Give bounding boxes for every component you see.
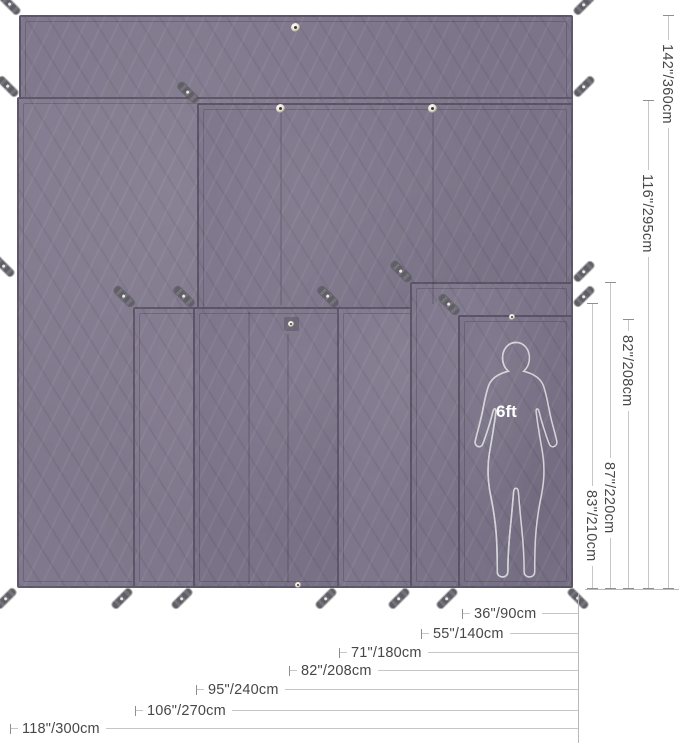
width-dim-118: 118"/300cm: [10, 720, 578, 737]
stake-loop-icon: [573, 0, 595, 15]
height-dim-142: 142"/360cm: [668, 15, 669, 589]
height-dim-116: 116"/295cm: [648, 100, 649, 589]
human-silhouette: [468, 336, 564, 586]
grommet-icon: [276, 104, 285, 113]
width-dim-label: 36"/90cm: [474, 606, 536, 622]
width-dim-label: 95"/240cm: [208, 682, 279, 698]
height-dim-label: 116"/295cm: [638, 170, 656, 257]
stake-loop-icon: [0, 0, 21, 15]
stake-loop-icon: [171, 588, 193, 610]
tarp-seam: [280, 110, 282, 305]
tarp-seam: [248, 312, 250, 584]
stake-loop-icon: [388, 588, 410, 610]
stake-loop-icon: [315, 588, 337, 610]
grommet-icon: [428, 104, 437, 113]
tarp-seam: [287, 334, 289, 583]
height-dim-82: 82"/208cm: [628, 319, 629, 589]
height-dim-87: 87"/220cm: [610, 282, 611, 589]
person-height-label: 6ft: [496, 402, 517, 422]
stake-loop-icon: [436, 588, 458, 610]
width-dim-label: 82"/208cm: [301, 663, 372, 679]
height-dim-label: 82"/208cm: [618, 331, 636, 411]
width-dim-71: 71"/180cm: [339, 644, 578, 661]
tarp-seam: [432, 112, 434, 304]
width-dim-55: 55"/140cm: [421, 625, 578, 642]
stake-loop-icon: [0, 588, 17, 610]
tarp-size-diagram: 6ft 142"/360cm 116"/295cm 82"/208cm 87"/…: [0, 0, 679, 743]
width-dim-36: 36"/90cm: [462, 605, 578, 622]
width-dim-label: 106"/270cm: [147, 703, 226, 719]
stake-loop-icon: [0, 76, 19, 98]
height-dim-label: 142"/360cm: [658, 40, 676, 128]
height-dim-label: 83"/210cm: [582, 486, 600, 566]
stake-loop-icon: [573, 261, 595, 283]
width-reference-line: [578, 594, 579, 743]
height-dim-label: 87"/220cm: [600, 458, 618, 538]
stake-loop-icon: [0, 256, 15, 278]
width-dim-label: 118"/300cm: [22, 721, 100, 737]
grommet-icon: [295, 582, 301, 588]
grommet-icon: [509, 314, 515, 320]
grommet-icon: [288, 321, 294, 327]
height-baseline: [585, 589, 679, 590]
stake-loop-icon: [573, 76, 595, 98]
width-dim-106: 106"/270cm: [135, 702, 578, 719]
height-dim-83: 83"/210cm: [592, 303, 593, 589]
grommet-icon: [291, 23, 300, 32]
width-dim-label: 71"/180cm: [351, 645, 422, 661]
stake-loop-icon: [111, 588, 133, 610]
width-dim-label: 55"/140cm: [433, 626, 504, 642]
width-dim-82: 82"/208cm: [289, 662, 578, 679]
width-dim-95: 95"/240cm: [196, 681, 578, 698]
